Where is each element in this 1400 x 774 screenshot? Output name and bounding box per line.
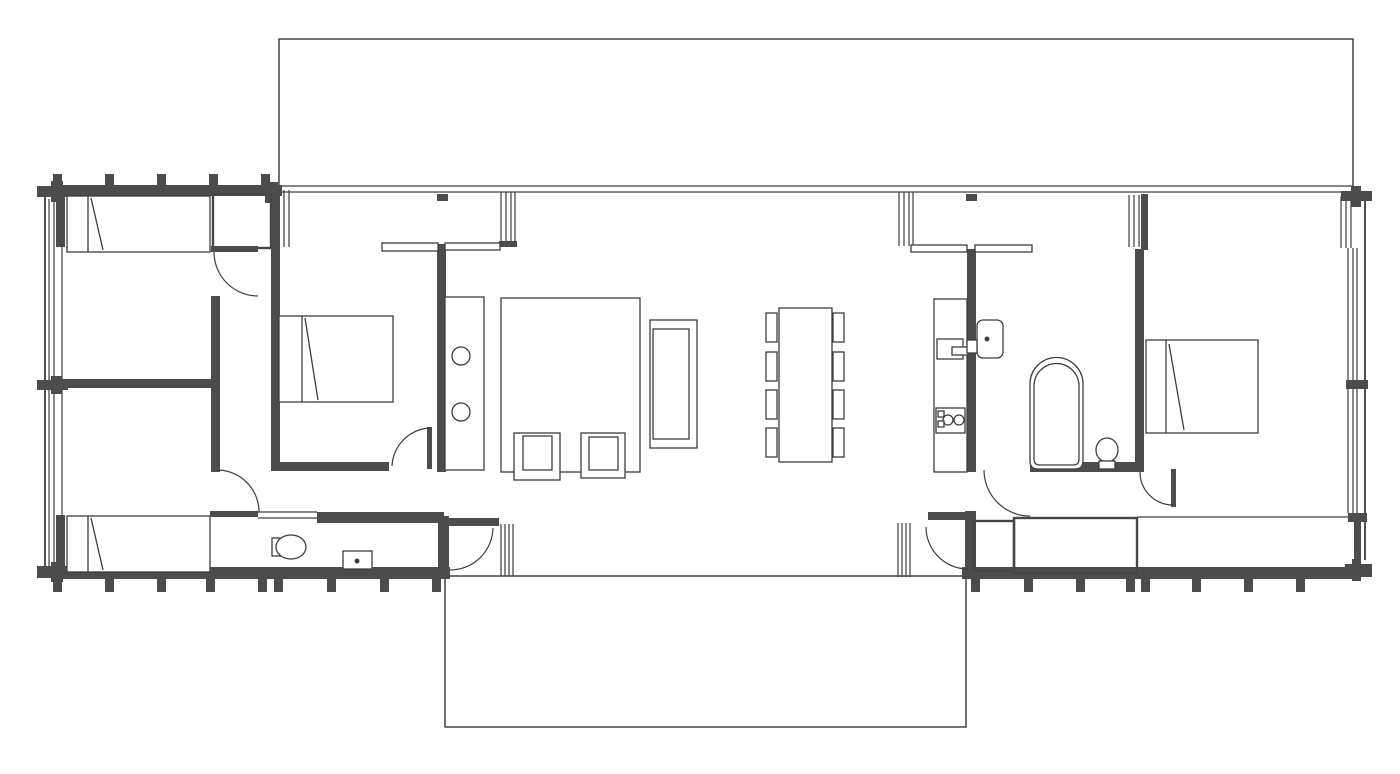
door-leaf-entry-left	[445, 518, 499, 526]
crossing-west-mid-v	[51, 376, 62, 394]
wall-bath-east	[1135, 249, 1144, 472]
floor-plan-drawing	[0, 0, 1400, 774]
dining-chair-8	[833, 428, 844, 457]
tick-bottom-13	[1126, 579, 1135, 592]
tick-top-5	[261, 174, 270, 187]
dining-chair-1	[766, 313, 777, 342]
kitchen-counter	[934, 299, 967, 472]
crossing-east-mid-h	[1346, 380, 1368, 389]
cooktop-burner-2	[954, 415, 964, 425]
crossing-east-bottom-v	[1352, 559, 1361, 581]
bed-master	[279, 316, 393, 402]
vent-right	[966, 194, 977, 201]
tick-bottom-4	[206, 579, 215, 592]
dining-chair-7	[833, 390, 844, 419]
toilet-right-tank	[1099, 461, 1115, 469]
door-leaf-master	[427, 427, 432, 469]
door-swing-entry-right	[926, 527, 968, 569]
cabinet-bar-kitchen-west	[911, 245, 967, 252]
tick-bottom-8	[380, 579, 389, 592]
closet-right-1	[974, 521, 1014, 571]
closet-right-2	[1014, 518, 1137, 573]
vent-left	[437, 194, 448, 201]
dining-table	[779, 308, 832, 462]
dining-chair-5	[833, 313, 844, 342]
sideboard-living	[445, 297, 484, 470]
tick-bottom-6	[274, 579, 283, 592]
sill-cap-east	[1348, 513, 1367, 522]
armchair-1-seat	[523, 436, 552, 470]
tick-bottom-1	[53, 579, 62, 592]
door-leaf-entry-right	[928, 512, 968, 520]
floor-plan-page	[0, 0, 1400, 774]
sideboard-basin-2	[452, 403, 470, 421]
door-swing-bath-right	[984, 470, 1030, 516]
tick-bottom-3	[157, 579, 166, 592]
door-leaf-bedroom-right	[1171, 469, 1176, 507]
tick-top-3	[157, 174, 166, 187]
washbasin-bracket	[967, 340, 977, 353]
door-leaf-bath-left	[210, 511, 258, 517]
tick-top-1	[53, 174, 62, 187]
kitchen-faucet	[952, 347, 968, 355]
corner-entry-left	[428, 567, 450, 579]
cabinet-bar-living-west	[382, 243, 438, 251]
tick-top-2	[105, 174, 114, 187]
bed-right	[1146, 340, 1258, 433]
wall-bedroom-right-stub	[1141, 194, 1148, 250]
crossing-east-top-v	[1351, 186, 1361, 207]
dining-chair-2	[766, 352, 777, 381]
dining-chair-3	[766, 390, 777, 419]
mullion-cap-living	[499, 241, 517, 247]
tick-bottom-5	[258, 579, 267, 592]
tick-bottom-7	[327, 579, 336, 592]
tick-bottom-11	[1024, 579, 1033, 592]
wall-bath-left-north	[317, 512, 444, 523]
dining-chair-6	[833, 352, 844, 381]
closet-bedroom-1	[213, 194, 271, 248]
wall-hall-west	[211, 296, 220, 472]
cooktop-knob-1	[938, 411, 944, 417]
door-swing-master	[392, 428, 430, 466]
high-cabinets	[382, 243, 1032, 252]
washbasin-bath-right	[977, 320, 1003, 358]
wall-bedroom-divider	[60, 379, 212, 388]
lower-deck-outline	[445, 576, 966, 727]
tick-bottom-17	[1296, 579, 1305, 592]
cabinet-bar-living-east	[445, 243, 500, 250]
tick-bottom-2	[105, 579, 114, 592]
door-leaf-bedroom-top-left	[211, 246, 258, 252]
armchair-2-seat	[589, 437, 618, 470]
wall-kitchen-bath	[967, 249, 976, 472]
wall-master-south	[271, 462, 389, 471]
dining-chair-4	[766, 428, 777, 457]
door-swing-bedroom-top-left	[214, 252, 258, 296]
tick-bottom-12	[1076, 579, 1085, 592]
upper-deck-outline	[279, 39, 1353, 188]
bathtub-inner	[1034, 364, 1079, 466]
door-swing-entry-left	[450, 528, 493, 570]
tick-bottom-16	[1244, 579, 1253, 592]
tick-bottom-9	[432, 579, 441, 592]
washbasin-bath-left-drain	[355, 559, 359, 563]
tick-top-4	[209, 174, 218, 187]
door-swing-bedroom-right	[1140, 472, 1173, 505]
tick-bottom-14	[1141, 579, 1150, 592]
tick-bottom-15	[1192, 579, 1201, 592]
tick-bottom-10	[971, 579, 980, 592]
washbasin-bath-right-drain	[985, 337, 989, 341]
toilet-right-bowl	[1096, 438, 1118, 462]
door-swing-bedroom-bottom-left	[217, 470, 259, 512]
cabinet-bar-kitchen-east	[975, 245, 1032, 252]
sofa-seat	[653, 329, 689, 439]
sideboard-basin-1	[452, 347, 470, 365]
cooktop-knob-2	[938, 421, 944, 427]
toilet-left-bowl	[276, 535, 306, 559]
